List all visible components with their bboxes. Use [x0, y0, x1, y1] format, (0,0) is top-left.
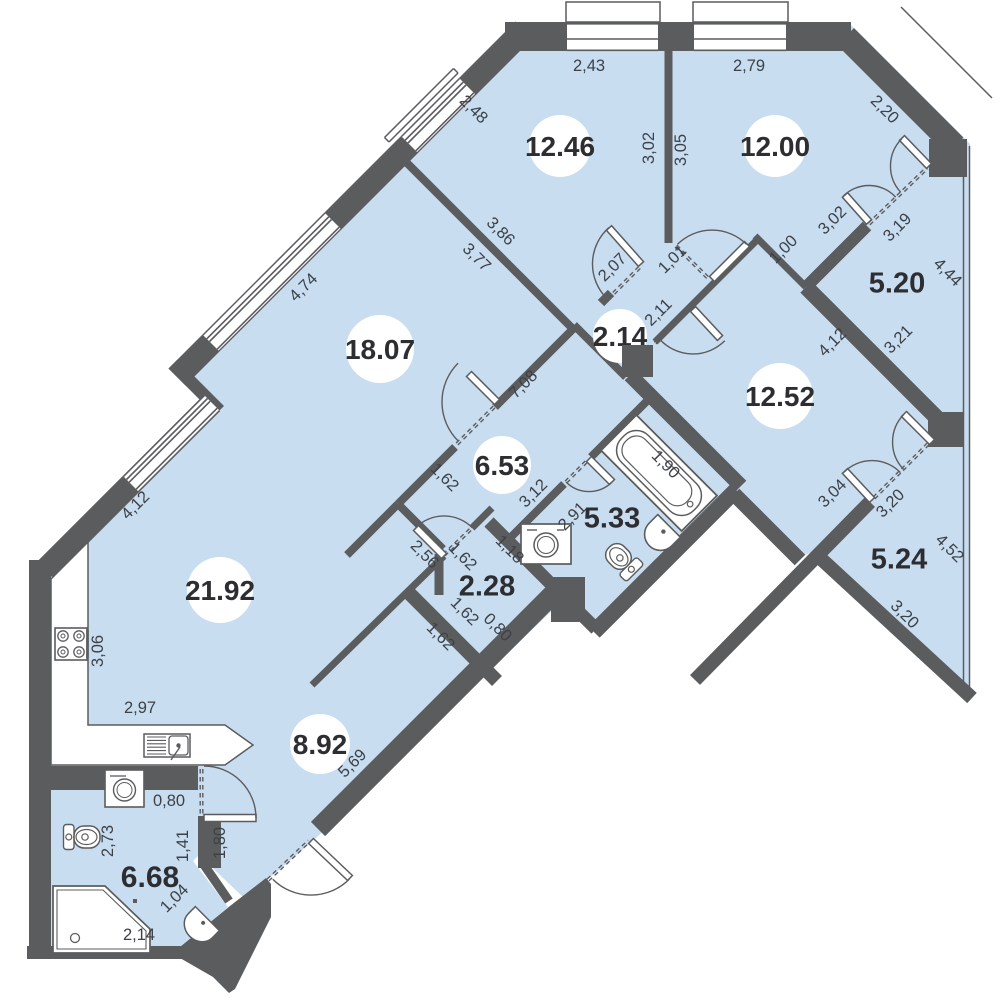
svg-text:12.00: 12.00: [740, 131, 810, 162]
svg-text:3,02: 3,02: [640, 132, 658, 164]
svg-text:5.24: 5.24: [871, 543, 927, 575]
svg-text:1,41: 1,41: [174, 830, 192, 862]
svg-text:12.52: 12.52: [745, 381, 815, 412]
svg-text:2,73: 2,73: [99, 825, 117, 857]
svg-text:2,79: 2,79: [733, 57, 765, 75]
svg-text:12.46: 12.46: [525, 131, 595, 162]
svg-text:18.07: 18.07: [345, 334, 415, 365]
svg-text:3,06: 3,06: [89, 635, 107, 667]
svg-text:5.20: 5.20: [869, 267, 925, 299]
svg-text:21.92: 21.92: [185, 575, 255, 606]
svg-text:2,97: 2,97: [124, 699, 156, 717]
svg-text:8.92: 8.92: [293, 729, 348, 760]
svg-text:0,80: 0,80: [153, 792, 185, 810]
svg-text:2,14: 2,14: [123, 926, 155, 944]
svg-text:2.28: 2.28: [459, 570, 515, 602]
svg-text:1,80: 1,80: [211, 827, 229, 859]
svg-text:2,43: 2,43: [573, 57, 605, 75]
svg-text:5.33: 5.33: [584, 502, 640, 534]
svg-text:6.53: 6.53: [475, 450, 530, 481]
svg-text:3,05: 3,05: [672, 134, 690, 166]
